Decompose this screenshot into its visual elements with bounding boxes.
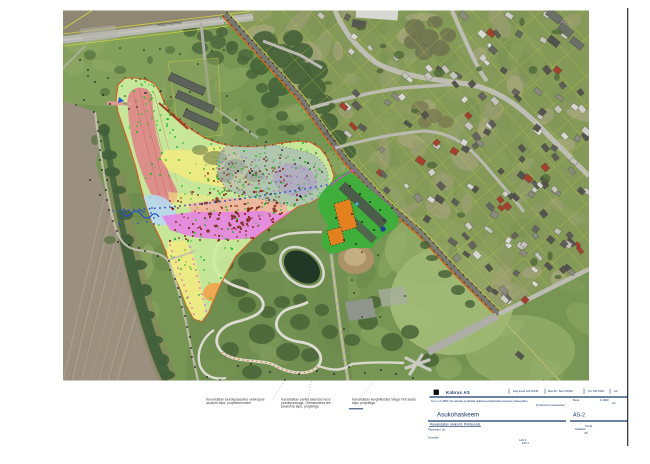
svg-text:Planeerija t iits: Planeerija t iits: [428, 428, 446, 432]
svg-text:Toimik: Toimik: [585, 424, 593, 428]
svg-text:hindamine koostamisel: hindamine koostamisel: [536, 403, 565, 407]
svg-text:A3: A3: [612, 401, 616, 405]
svg-text:Kobras AS: Kobras AS: [446, 390, 470, 395]
svg-text:asukoht taps. projekteerimisel: asukoht taps. projekteerimisel: [206, 401, 251, 405]
svg-text:Tel 730 0310: Tel 730 0310: [588, 389, 604, 393]
svg-text:lehti 2: lehti 2: [522, 441, 529, 445]
svg-text:taps. projektiga: taps. projektiga: [352, 401, 375, 405]
svg-text:asukohta taps. projektiga: asukohta taps. projektiga: [281, 405, 319, 409]
svg-text:Keskkonnamoju strateegiline: Keskkonnamoju strateegiline: [492, 399, 528, 403]
svg-text:Riia 35, Tartu 50410: Riia 35, Tartu 50410: [548, 389, 573, 393]
svg-text:1:4000: 1:4000: [600, 398, 609, 402]
svg-text:Kontrollis: Kontrollis: [428, 436, 439, 440]
svg-text:Kavandatav olukord. Pohijoonis: Kavandatav olukord. Pohijoonis: [430, 422, 481, 426]
svg-text:UP: UP: [584, 431, 588, 435]
svg-text:Moot: Moot: [573, 398, 579, 402]
svg-text:A3: A3: [614, 389, 618, 393]
svg-text:Too nr A-2584 Oru aleviku ja l: Too nr A-2584 Oru aleviku ja lahiala uld…: [431, 399, 493, 403]
svg-text:Reg kood 10171636: Reg kood 10171636: [513, 389, 539, 393]
svg-text:Asukohaskeem: Asukohaskeem: [437, 412, 479, 419]
svg-text:AS-2: AS-2: [573, 413, 585, 419]
